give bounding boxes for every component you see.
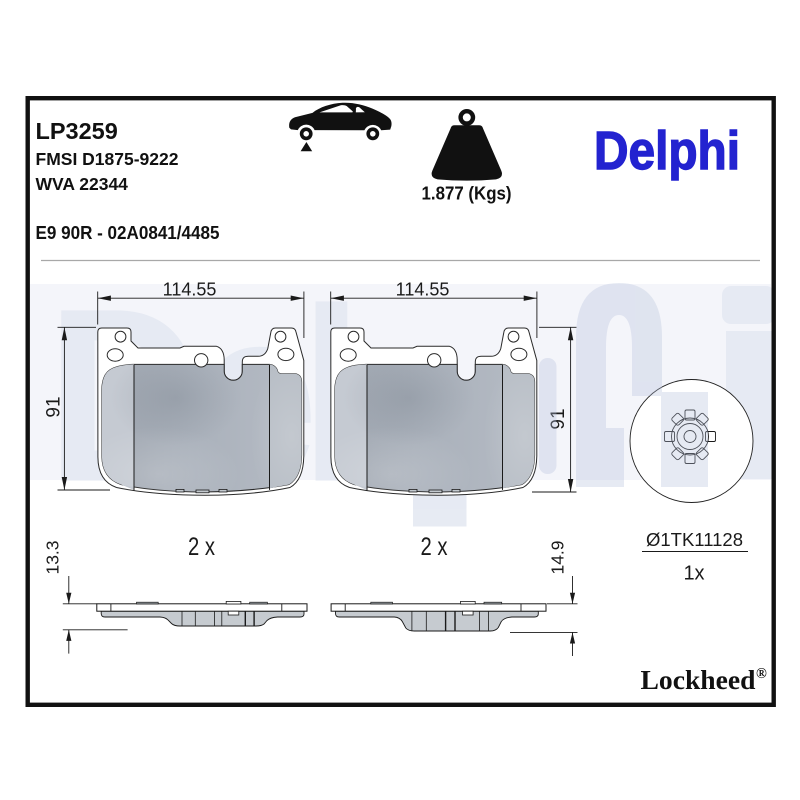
svg-text:114.55: 114.55: [396, 280, 450, 300]
svg-text:91: 91: [44, 396, 65, 417]
svg-text:14.9: 14.9: [548, 540, 568, 574]
svg-text:1.877 (Kgs): 1.877 (Kgs): [422, 183, 512, 204]
svg-text:Lockheed: Lockheed: [641, 664, 756, 695]
svg-text:1x: 1x: [683, 563, 704, 585]
svg-text:Delphi: Delphi: [594, 121, 740, 181]
svg-text:2 x: 2 x: [188, 533, 215, 561]
svg-text:13.3: 13.3: [43, 540, 63, 574]
svg-text:LP3259: LP3259: [36, 118, 118, 144]
svg-text:®: ®: [756, 666, 767, 682]
svg-text:2 x: 2 x: [421, 533, 448, 561]
svg-text:E9 90R - 02A0841/4485: E9 90R - 02A0841/4485: [36, 223, 220, 243]
svg-text:FMSI D1875-9222: FMSI D1875-9222: [36, 149, 179, 169]
svg-text:114.55: 114.55: [163, 280, 217, 300]
svg-text:Ø1TK11128: Ø1TK11128: [646, 529, 743, 550]
svg-text:WVA 22344: WVA 22344: [36, 174, 129, 194]
